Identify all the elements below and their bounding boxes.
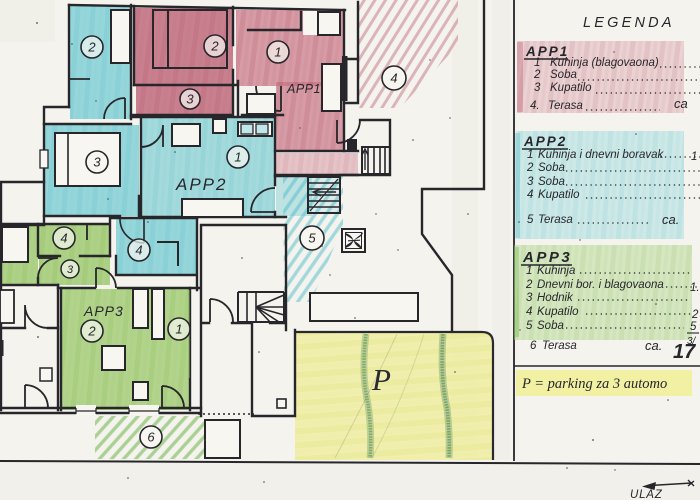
svg-text:ca: ca — [674, 96, 688, 111]
svg-text:3: 3 — [526, 292, 533, 304]
svg-text:3: 3 — [93, 155, 101, 170]
svg-text:Terasa: Terasa — [538, 214, 573, 226]
svg-text:Terasa: Terasa — [548, 100, 583, 112]
svg-text:3: 3 — [186, 92, 194, 107]
svg-text:3: 3 — [534, 82, 541, 94]
svg-text:6: 6 — [530, 340, 537, 352]
svg-text:1: 1 — [526, 265, 532, 277]
svg-text:4: 4 — [60, 231, 67, 246]
svg-text:4: 4 — [135, 243, 142, 258]
svg-text:Hodnik: Hodnik — [537, 292, 574, 304]
svg-text:Kuhinja: Kuhinja — [537, 265, 575, 277]
svg-text:Kupatilo: Kupatilo — [550, 82, 592, 94]
svg-text:2: 2 — [533, 69, 541, 81]
svg-text:APP2: APP2 — [175, 175, 227, 194]
svg-text:4.: 4. — [530, 100, 540, 112]
svg-text:Kupatilo: Kupatilo — [538, 189, 580, 201]
svg-text:Soba: Soba — [550, 69, 577, 81]
svg-text:1: 1 — [691, 151, 697, 163]
svg-text:2: 2 — [525, 279, 533, 291]
svg-text:2: 2 — [526, 162, 534, 174]
svg-text:5: 5 — [690, 321, 697, 333]
svg-text:Kuhinja i dnevni boravak: Kuhinja i dnevni boravak — [538, 149, 665, 161]
svg-text:1: 1 — [534, 57, 540, 69]
svg-text:1: 1 — [234, 150, 241, 165]
svg-text:5: 5 — [308, 231, 316, 246]
svg-text:Terasa: Terasa — [542, 340, 577, 352]
svg-text:P = parking za 3 automo: P = parking za 3 automo — [521, 376, 667, 392]
svg-text:5: 5 — [526, 320, 533, 332]
svg-text:2: 2 — [87, 324, 96, 339]
svg-text:P: P — [371, 362, 391, 397]
svg-text:4: 4 — [390, 71, 397, 86]
svg-text:1: 1 — [274, 45, 281, 60]
svg-text:Soba: Soba — [537, 320, 564, 332]
svg-text:ca.: ca. — [645, 338, 662, 353]
svg-text:APP1: APP1 — [286, 82, 321, 96]
svg-text:Kupatilo: Kupatilo — [537, 306, 579, 318]
svg-text:6: 6 — [147, 430, 155, 445]
svg-text:Dnevni bor. i blagovaona: Dnevni bor. i blagovaona — [537, 279, 664, 291]
svg-text:2: 2 — [691, 309, 699, 321]
svg-text:ca.: ca. — [662, 212, 679, 227]
svg-text:1: 1 — [527, 149, 533, 161]
svg-text:3: 3 — [67, 264, 74, 276]
svg-text:APP2: APP2 — [523, 134, 567, 149]
svg-text:LEGENDA: LEGENDA — [583, 15, 675, 31]
svg-text:1.: 1. — [690, 282, 700, 294]
svg-text:Soba: Soba — [538, 162, 565, 174]
svg-text:4: 4 — [526, 306, 532, 318]
svg-text:Kuhinja (blagovaona): Kuhinja (blagovaona) — [550, 57, 659, 69]
svg-text:ULAZ: ULAZ — [630, 489, 663, 500]
svg-text:2: 2 — [87, 40, 96, 55]
svg-text:3: 3 — [527, 176, 534, 188]
svg-text:5: 5 — [527, 214, 534, 226]
svg-text:4: 4 — [527, 189, 533, 201]
svg-text:APP3: APP3 — [83, 303, 124, 319]
svg-text:3/: 3/ — [687, 336, 697, 347]
svg-text:APP3: APP3 — [522, 249, 572, 266]
svg-text:2: 2 — [210, 39, 219, 54]
svg-text:1: 1 — [175, 322, 182, 337]
svg-text:Soba: Soba — [538, 176, 565, 188]
